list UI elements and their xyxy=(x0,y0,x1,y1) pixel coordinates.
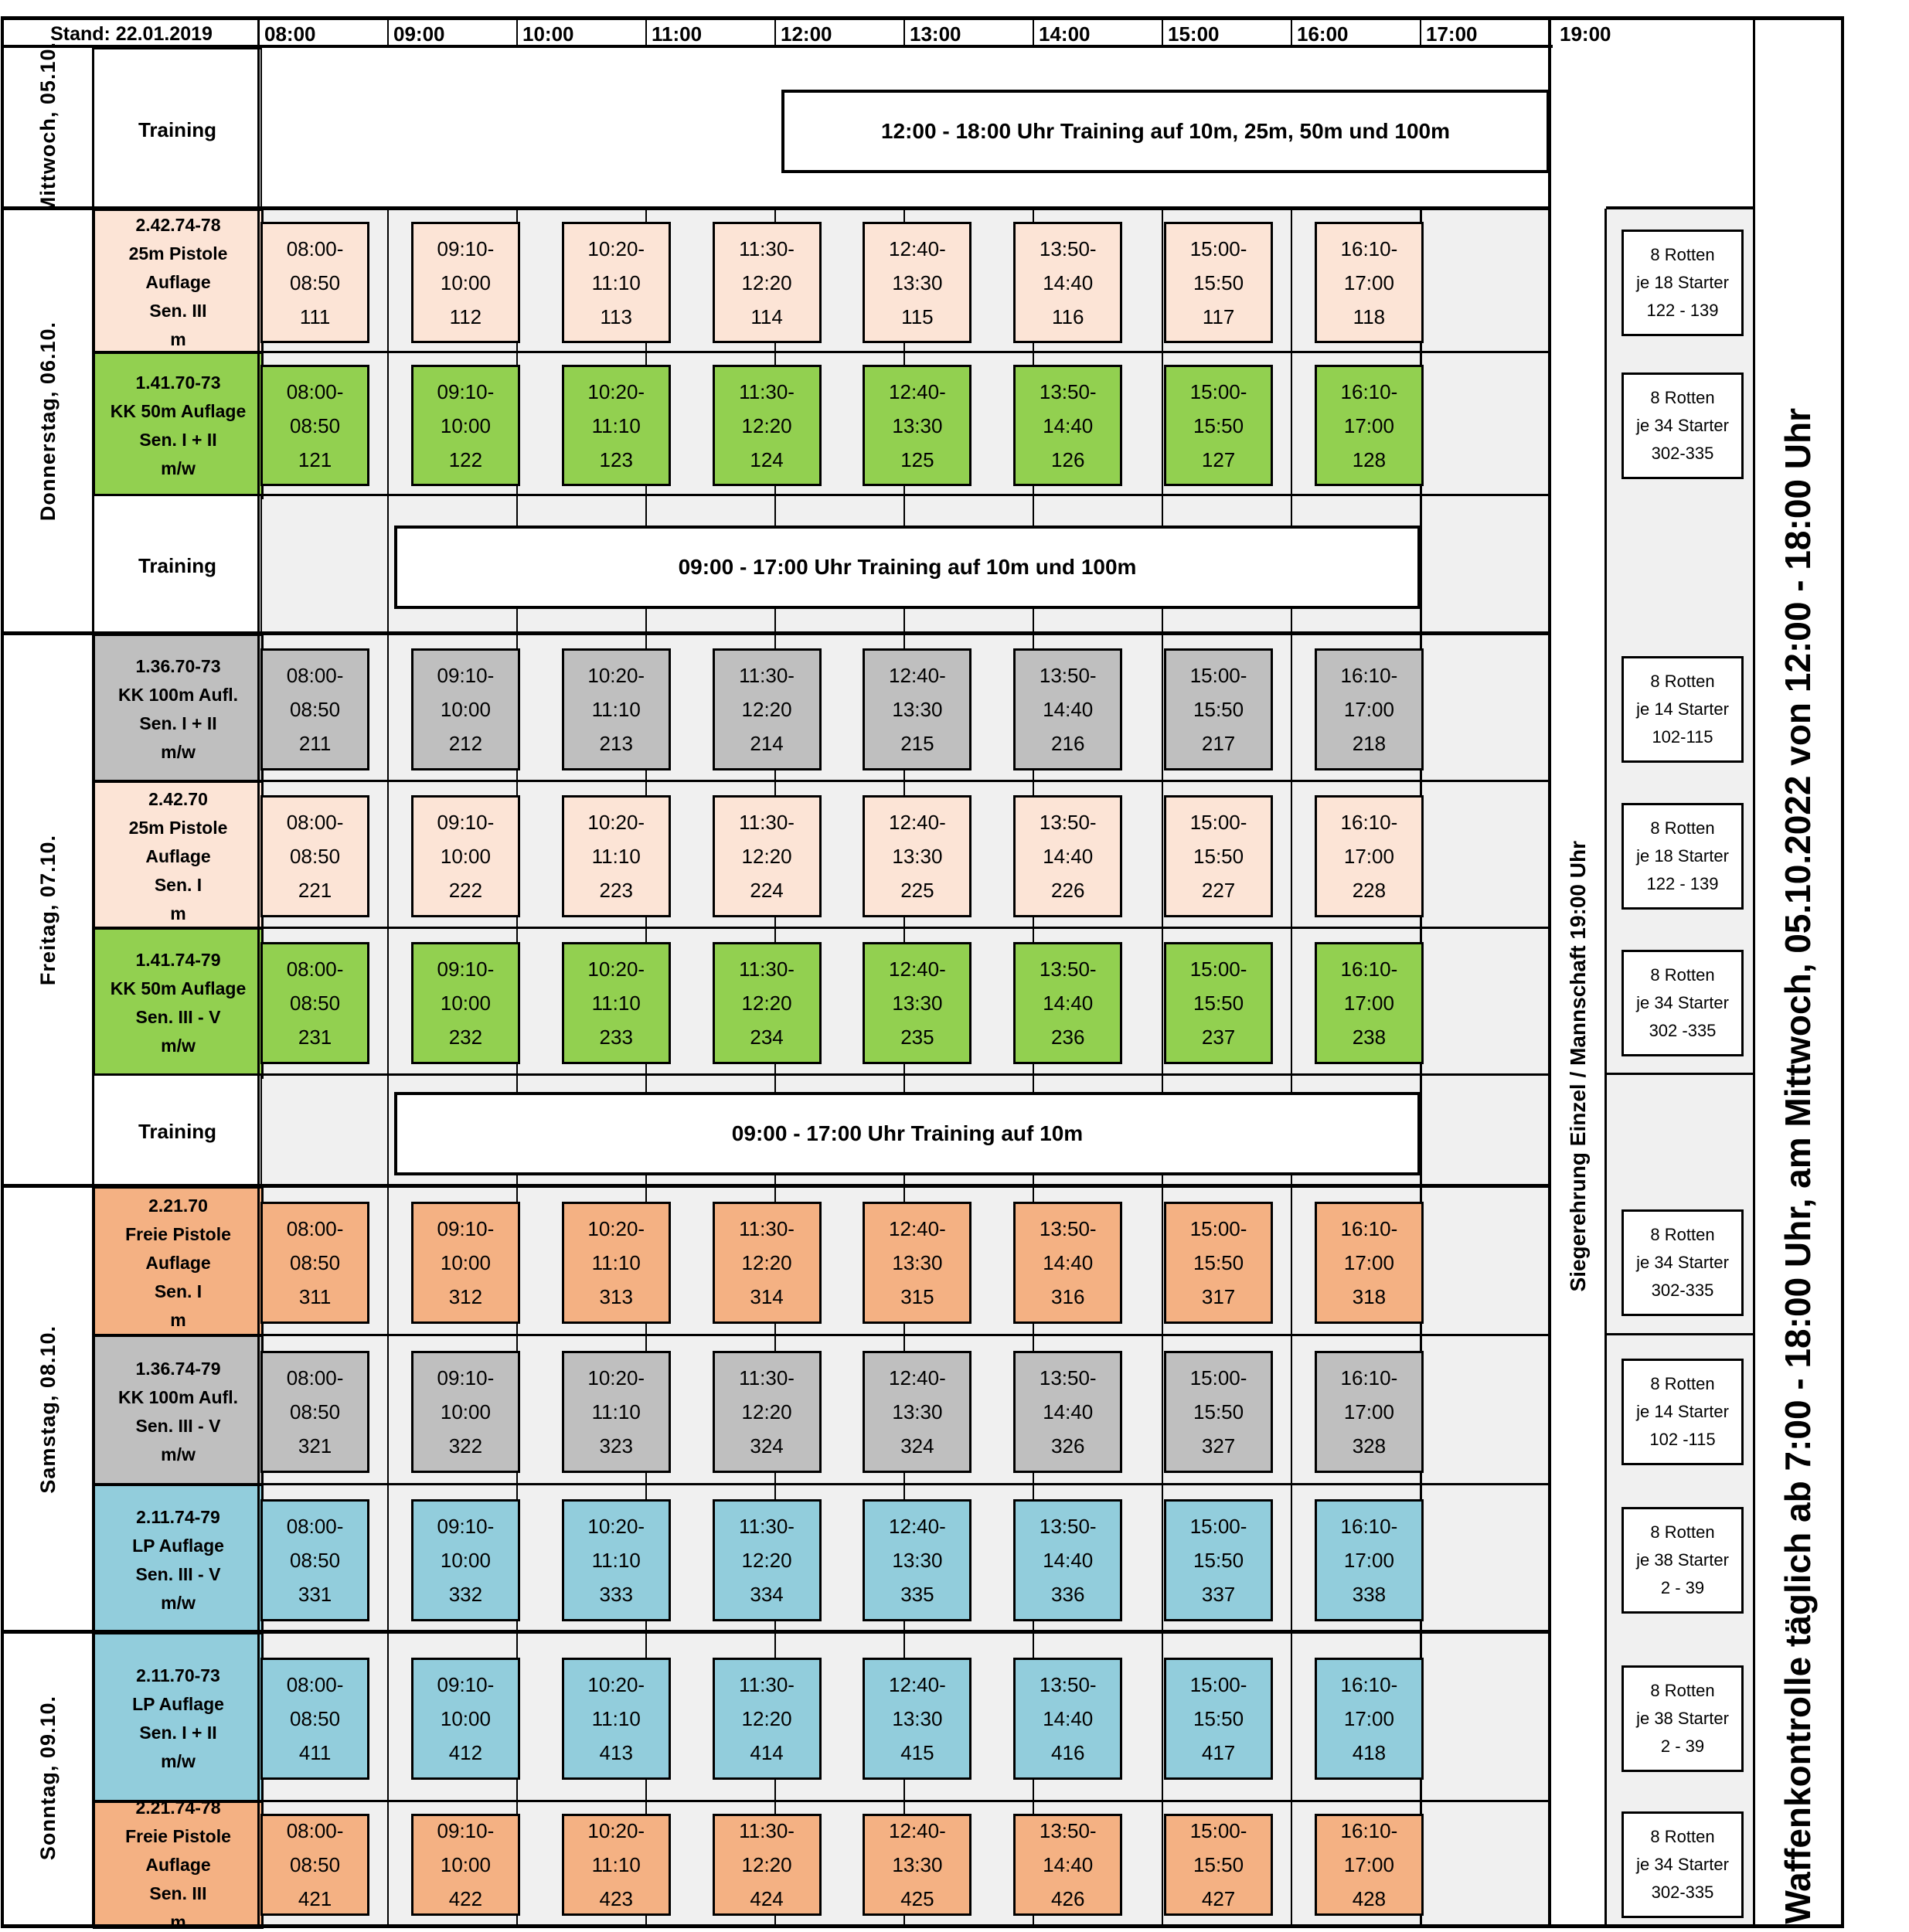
slot-time: 15:00-15:50 xyxy=(1166,375,1271,443)
category-line: m xyxy=(170,325,185,354)
slot-number: 311 xyxy=(299,1280,331,1314)
slot-time: 12:40-13:30 xyxy=(865,1212,969,1280)
time-slot-cell: 13:50-14:40316 xyxy=(1013,1202,1122,1324)
category-cell: 1.41.70-73KK 50m AuflageSen. I + IIm/w xyxy=(93,352,264,499)
rotten-top-border xyxy=(1606,206,1754,209)
slot-number: 236 xyxy=(1051,1020,1084,1054)
training-label: Training xyxy=(138,116,216,145)
category-cell: 1.41.74-79KK 50m AuflageSen. III - Vm/w xyxy=(93,927,264,1079)
header-bottom-border xyxy=(4,45,1553,48)
slot-number: 326 xyxy=(1051,1429,1084,1463)
time-slot-cell: 09:10-10:00332 xyxy=(411,1499,520,1621)
slot-number: 228 xyxy=(1353,873,1386,907)
category-line: Sen. III xyxy=(149,297,206,325)
time-slot-cell: 08:00-08:50121 xyxy=(260,365,369,486)
slot-time: 08:00-08:50 xyxy=(263,1814,367,1882)
category-line: 1.36.74-79 xyxy=(136,1355,221,1383)
time-slot-cell: 09:10-10:00122 xyxy=(411,365,520,486)
training-label: Training xyxy=(138,552,216,580)
time-slot-cell: 11:30-12:20214 xyxy=(713,648,822,770)
slot-number: 218 xyxy=(1353,726,1386,760)
rotten-line: je 38 Starter xyxy=(1636,1705,1729,1733)
slot-number: 321 xyxy=(298,1429,332,1463)
header-grid-line xyxy=(1162,20,1163,48)
category-line: KK 100m Aufl. xyxy=(118,681,238,709)
grid-right-border xyxy=(1548,20,1551,1924)
slot-time: 10:20-11:10 xyxy=(564,1212,669,1280)
slot-number: 421 xyxy=(298,1882,332,1916)
slot-number: 425 xyxy=(900,1882,934,1916)
rotten-line: 8 Rotten xyxy=(1650,815,1714,842)
category-line: Freie Pistole Auflage xyxy=(95,1822,261,1879)
slot-time: 10:20-11:10 xyxy=(564,375,669,443)
slot-time: 09:10-10:00 xyxy=(413,375,518,443)
time-slot-cell: 13:50-14:40336 xyxy=(1013,1499,1122,1621)
header-time-cell: 11:00 xyxy=(646,20,781,48)
time-slot-cell: 11:30-12:20114 xyxy=(713,222,822,343)
slot-time: 09:10-10:00 xyxy=(413,1361,518,1429)
slot-time: 16:10-17:00 xyxy=(1317,375,1421,443)
slot-time: 16:10-17:00 xyxy=(1317,1814,1421,1882)
slot-time: 08:00-08:50 xyxy=(263,1668,367,1736)
time-slot-cell: 12:40-13:30115 xyxy=(863,222,972,343)
slot-number: 316 xyxy=(1051,1280,1084,1314)
time-slot-cell: 13:50-14:40416 xyxy=(1013,1658,1122,1780)
rotten-line: 302-335 xyxy=(1652,440,1714,468)
rotten-line: 8 Rotten xyxy=(1650,384,1714,412)
time-slot-cell: 15:00-15:50327 xyxy=(1164,1351,1273,1473)
time-slot-cell: 11:30-12:20314 xyxy=(713,1202,822,1324)
time-slot-cell: 10:20-11:10223 xyxy=(562,795,671,917)
slot-number: 424 xyxy=(750,1882,783,1916)
rotten-left-border xyxy=(1604,209,1607,1924)
slot-time: 09:10-10:00 xyxy=(413,1509,518,1577)
slot-number: 127 xyxy=(1202,443,1235,477)
slot-time: 16:10-17:00 xyxy=(1317,1509,1421,1577)
category-line: Sen. III xyxy=(149,1879,206,1908)
header-stand-cell: Stand: 22.01.2019 xyxy=(4,20,259,48)
slot-number: 427 xyxy=(1202,1882,1235,1916)
day-cell: Donnerstag, 06.10. xyxy=(4,209,93,634)
day-cell: Mittwoch, 05.10. xyxy=(4,48,93,209)
slot-time: 11:30-12:20 xyxy=(715,1509,819,1577)
slot-number: 415 xyxy=(900,1736,934,1770)
siegerehrung-label: Siegerehrung Einzel / Mannschaft 19:00 U… xyxy=(1566,841,1591,1291)
slot-number: 221 xyxy=(298,873,332,907)
slot-time: 16:10-17:00 xyxy=(1317,658,1421,726)
slot-time: 15:00-15:50 xyxy=(1166,1668,1271,1736)
slot-time: 10:20-11:10 xyxy=(564,805,669,873)
slot-number: 315 xyxy=(900,1280,934,1314)
time-slot-cell: 12:40-13:30235 xyxy=(863,942,972,1064)
slot-number: 124 xyxy=(750,443,783,477)
slot-time: 09:10-10:00 xyxy=(413,952,518,1020)
slot-number: 337 xyxy=(1202,1577,1235,1611)
time-slot-cell: 08:00-08:50231 xyxy=(260,942,369,1064)
time-slot-cell: 11:30-12:20334 xyxy=(713,1499,822,1621)
day-cell: Samstag, 08.10. xyxy=(4,1186,93,1632)
slot-number: 213 xyxy=(600,726,633,760)
day-label: Donnerstag, 06.10. xyxy=(36,321,60,521)
header-grid-line xyxy=(387,20,389,48)
category-cell: 2.11.74-79LP AuflageSen. III - Vm/w xyxy=(93,1484,264,1637)
rotten-line: je 14 Starter xyxy=(1636,1398,1729,1426)
header-grid-line xyxy=(903,20,905,48)
category-line: KK 100m Aufl. xyxy=(118,1383,238,1412)
slot-time: 10:20-11:10 xyxy=(564,658,669,726)
slot-time: 16:10-17:00 xyxy=(1317,1212,1421,1280)
header-grid-line xyxy=(1420,20,1421,48)
rotten-line: je 34 Starter xyxy=(1636,412,1729,440)
slot-time: 13:50-14:40 xyxy=(1016,1361,1120,1429)
slot-number: 336 xyxy=(1051,1577,1084,1611)
category-line: Freie Pistole Auflage xyxy=(95,1220,261,1277)
slot-number: 237 xyxy=(1202,1020,1235,1054)
time-slot-cell: 09:10-10:00212 xyxy=(411,648,520,770)
category-line: KK 50m Auflage xyxy=(111,975,247,1003)
header-time-cell: 19:00 xyxy=(1554,20,1652,48)
slot-number: 223 xyxy=(600,873,633,907)
category-line: Sen. III - V xyxy=(136,1412,221,1440)
time-slot-cell: 16:10-17:00328 xyxy=(1315,1351,1424,1473)
header-grid-line xyxy=(774,20,776,48)
slot-number: 317 xyxy=(1202,1280,1235,1314)
rotten-line: 302 -335 xyxy=(1649,1017,1717,1045)
category-line: 1.36.70-73 xyxy=(136,652,221,681)
slot-time: 13:50-14:40 xyxy=(1016,952,1120,1020)
slot-number: 121 xyxy=(298,443,332,477)
slot-time: 12:40-13:30 xyxy=(865,1509,969,1577)
category-line: m/w xyxy=(161,738,196,767)
waffenkontrolle-column: Waffenkontrolle täglich ab 7:00 - 18:00 … xyxy=(1754,20,1841,1930)
slot-number: 413 xyxy=(600,1736,633,1770)
slot-time: 11:30-12:20 xyxy=(715,232,819,300)
rotten-line: 8 Rotten xyxy=(1650,1370,1714,1398)
time-slot-cell: 11:30-12:20414 xyxy=(713,1658,822,1780)
rotten-line: 8 Rotten xyxy=(1650,1677,1714,1705)
slot-time: 09:10-10:00 xyxy=(413,805,518,873)
time-slot-cell: 15:00-15:50317 xyxy=(1164,1202,1273,1324)
rotten-line: 2 - 39 xyxy=(1661,1574,1704,1602)
slot-number: 322 xyxy=(449,1429,482,1463)
rotten-info-box: 8 Rottenje 18 Starter122 - 139 xyxy=(1621,230,1744,336)
rotten-line: 8 Rotten xyxy=(1650,1221,1714,1249)
slot-number: 333 xyxy=(600,1577,633,1611)
slot-time: 08:00-08:50 xyxy=(263,375,367,443)
rotten-line: 8 Rotten xyxy=(1650,1519,1714,1546)
slot-time: 11:30-12:20 xyxy=(715,1668,819,1736)
time-slot-cell: 16:10-17:00318 xyxy=(1315,1202,1424,1324)
time-slot-cell: 16:10-17:00128 xyxy=(1315,365,1424,486)
rotten-line: je 38 Starter xyxy=(1636,1546,1729,1574)
time-slot-cell: 12:40-13:30324 xyxy=(863,1351,972,1473)
slot-number: 111 xyxy=(300,300,331,334)
slot-number: 324 xyxy=(900,1429,934,1463)
hour-grid-line xyxy=(1291,209,1292,1924)
time-slot-cell: 15:00-15:50427 xyxy=(1164,1814,1273,1916)
row-separator-line xyxy=(93,1483,1550,1485)
slot-number: 122 xyxy=(449,443,482,477)
slot-number: 214 xyxy=(750,726,783,760)
slot-time: 08:00-08:50 xyxy=(263,658,367,726)
day-cell: Sonntag, 09.10. xyxy=(4,1632,93,1924)
header-time-cell: 14:00 xyxy=(1033,20,1168,48)
header-time-cell: 08:00 xyxy=(259,20,393,48)
slot-number: 112 xyxy=(450,300,482,334)
slot-time: 08:00-08:50 xyxy=(263,1509,367,1577)
day-boundary-line xyxy=(4,1184,1550,1188)
slot-number: 414 xyxy=(750,1736,783,1770)
slot-time: 13:50-14:40 xyxy=(1016,1509,1120,1577)
category-line: m/w xyxy=(161,1032,196,1060)
slot-time: 15:00-15:50 xyxy=(1166,1361,1271,1429)
time-slot-cell: 11:30-12:20324 xyxy=(713,1351,822,1473)
time-slot-cell: 10:20-11:10313 xyxy=(562,1202,671,1324)
rotten-info-box: 8 Rottenje 34 Starter302-335 xyxy=(1621,1811,1744,1918)
time-slot-cell: 10:20-11:10213 xyxy=(562,648,671,770)
header-time-cell: 17:00 xyxy=(1421,20,1555,48)
time-slot-cell: 11:30-12:20124 xyxy=(713,365,822,486)
rotten-line: 122 - 139 xyxy=(1647,297,1719,325)
slot-number: 417 xyxy=(1202,1736,1235,1770)
slot-number: 224 xyxy=(750,873,783,907)
slot-time: 16:10-17:00 xyxy=(1317,1361,1421,1429)
slot-time: 12:40-13:30 xyxy=(865,952,969,1020)
time-slot-cell: 13:50-14:40426 xyxy=(1013,1814,1122,1916)
hour-grid-line xyxy=(1162,209,1163,1924)
training-category-cell: Training xyxy=(93,495,262,637)
time-slot-cell: 09:10-10:00222 xyxy=(411,795,520,917)
slot-time: 16:10-17:00 xyxy=(1317,952,1421,1020)
slot-time: 10:20-11:10 xyxy=(564,232,669,300)
slot-time: 13:50-14:40 xyxy=(1016,232,1120,300)
row-separator-line xyxy=(93,1334,1550,1336)
slot-number: 211 xyxy=(299,726,331,760)
category-cell: 2.21.74-78Freie Pistole AuflageSen. IIIm xyxy=(93,1801,264,1929)
slot-time: 08:00-08:50 xyxy=(263,952,367,1020)
row-separator-line xyxy=(93,1073,1550,1076)
time-slot-cell: 10:20-11:10423 xyxy=(562,1814,671,1916)
outer-right-border xyxy=(1841,16,1844,1928)
training-category-cell: Training xyxy=(93,1074,262,1189)
row-separator-line xyxy=(93,351,1550,353)
category-grid-divider xyxy=(257,20,260,1924)
slot-time: 08:00-08:50 xyxy=(263,805,367,873)
slot-number: 225 xyxy=(900,873,934,907)
time-slot-cell: 08:00-08:50321 xyxy=(260,1351,369,1473)
category-line: KK 50m Auflage xyxy=(111,397,247,426)
slot-time: 09:10-10:00 xyxy=(413,1814,518,1882)
time-slot-cell: 12:40-13:30225 xyxy=(863,795,972,917)
slot-number: 114 xyxy=(750,300,782,334)
waffenkontrolle-label: Waffenkontrolle täglich ab 7:00 - 18:00 … xyxy=(1777,408,1819,1924)
time-slot-cell: 15:00-15:50217 xyxy=(1164,648,1273,770)
slot-time: 15:00-15:50 xyxy=(1166,1509,1271,1577)
hour-grid-line xyxy=(387,209,389,1924)
slot-time: 16:10-17:00 xyxy=(1317,232,1421,300)
slot-time: 09:10-10:00 xyxy=(413,658,518,726)
slot-time: 12:40-13:30 xyxy=(865,805,969,873)
time-slot-cell: 09:10-10:00422 xyxy=(411,1814,520,1916)
category-cell: 2.42.7025m Pistole AuflageSen. Im xyxy=(93,781,264,932)
header-grid-line xyxy=(645,20,647,48)
training-banner: 09:00 - 17:00 Uhr Training auf 10m xyxy=(394,1092,1421,1175)
category-line: Sen. III - V xyxy=(136,1560,221,1589)
time-slot-cell: 13:50-14:40226 xyxy=(1013,795,1122,917)
slot-time: 11:30-12:20 xyxy=(715,375,819,443)
day-label: Samstag, 08.10. xyxy=(36,1325,60,1494)
slot-time: 15:00-15:50 xyxy=(1166,658,1271,726)
slot-time: 11:30-12:20 xyxy=(715,805,819,873)
time-slot-cell: 12:40-13:30125 xyxy=(863,365,972,486)
time-slot-cell: 13:50-14:40216 xyxy=(1013,648,1122,770)
slot-time: 09:10-10:00 xyxy=(413,1212,518,1280)
slot-time: 16:10-17:00 xyxy=(1317,805,1421,873)
slot-time: 15:00-15:50 xyxy=(1166,1212,1271,1280)
category-line: 25m Pistole Auflage xyxy=(95,240,261,297)
slot-time: 15:00-15:50 xyxy=(1166,1814,1271,1882)
time-slot-cell: 08:00-08:50411 xyxy=(260,1658,369,1780)
rotten-info-box: 8 Rottenje 34 Starter302-335 xyxy=(1621,1209,1744,1316)
rotten-line: 8 Rotten xyxy=(1650,1823,1714,1851)
day-label: Sonntag, 09.10. xyxy=(36,1696,60,1860)
row-separator-line xyxy=(93,494,1550,496)
slot-time: 11:30-12:20 xyxy=(715,952,819,1020)
category-line: Sen. I + II xyxy=(139,709,216,738)
rotten-line: je 18 Starter xyxy=(1636,269,1729,297)
slot-number: 234 xyxy=(750,1020,783,1054)
rotten-info-box: 8 Rottenje 34 Starter302-335 xyxy=(1621,372,1744,479)
category-line: LP Auflage xyxy=(132,1690,224,1719)
time-slot-cell: 08:00-08:50221 xyxy=(260,795,369,917)
header-time-cell: 16:00 xyxy=(1291,20,1426,48)
rotten-line: 302-335 xyxy=(1652,1277,1714,1304)
slot-number: 126 xyxy=(1051,443,1084,477)
slot-number: 411 xyxy=(299,1736,331,1770)
time-slot-cell: 08:00-08:50331 xyxy=(260,1499,369,1621)
slot-number: 232 xyxy=(449,1020,482,1054)
slot-number: 328 xyxy=(1353,1429,1386,1463)
category-line: Sen. I + II xyxy=(139,426,216,454)
category-cell: 1.36.70-73KK 100m Aufl.Sen. I + IIm/w xyxy=(93,634,264,785)
time-slot-cell: 08:00-08:50211 xyxy=(260,648,369,770)
slot-number: 313 xyxy=(600,1280,633,1314)
rotten-section-divider xyxy=(1606,1333,1754,1335)
category-line: Sen. III - V xyxy=(136,1003,221,1032)
rotten-info-box: 8 Rottenje 34 Starter302 -335 xyxy=(1621,950,1744,1056)
header-grid-line xyxy=(1291,20,1292,48)
day-boundary-line xyxy=(4,631,1550,635)
time-slot-cell: 10:20-11:10413 xyxy=(562,1658,671,1780)
siegerehrung-column: Siegerehrung Einzel / Mannschaft 19:00 U… xyxy=(1550,209,1606,1924)
time-slot-cell: 09:10-10:00232 xyxy=(411,942,520,1064)
slot-number: 233 xyxy=(600,1020,633,1054)
time-slot-cell: 10:20-11:10113 xyxy=(562,222,671,343)
slot-number: 117 xyxy=(1203,300,1234,334)
slot-number: 338 xyxy=(1353,1577,1386,1611)
category-line: 1.41.70-73 xyxy=(136,369,221,397)
outer-left-border xyxy=(1,16,4,1928)
rotten-line: 8 Rotten xyxy=(1650,241,1714,269)
slot-time: 11:30-12:20 xyxy=(715,1212,819,1280)
slot-time: 10:20-11:10 xyxy=(564,1668,669,1736)
slot-time: 15:00-15:50 xyxy=(1166,232,1271,300)
rotten-line: 102-115 xyxy=(1652,723,1713,751)
time-slot-cell: 16:10-17:00118 xyxy=(1315,222,1424,343)
rotten-line: 2 - 39 xyxy=(1661,1733,1704,1760)
slot-number: 426 xyxy=(1051,1882,1084,1916)
slot-time: 13:50-14:40 xyxy=(1016,1668,1120,1736)
slot-number: 222 xyxy=(449,873,482,907)
slot-time: 12:40-13:30 xyxy=(865,1668,969,1736)
rotten-line: je 14 Starter xyxy=(1636,696,1729,723)
slot-number: 118 xyxy=(1353,300,1385,334)
rotten-line: 8 Rotten xyxy=(1650,961,1714,989)
rotten-section-divider xyxy=(1606,1073,1754,1075)
category-line: m/w xyxy=(161,1747,196,1776)
outer-top-border xyxy=(4,16,1841,20)
slot-number: 323 xyxy=(600,1429,633,1463)
slot-number: 115 xyxy=(901,300,933,334)
time-slot-cell: 10:20-11:10233 xyxy=(562,942,671,1064)
time-slot-cell: 16:10-17:00428 xyxy=(1315,1814,1424,1916)
category-line: Sen. I xyxy=(155,1277,202,1306)
rotten-info-box: 8 Rottenje 18 Starter122 - 139 xyxy=(1621,803,1744,910)
time-slot-cell: 08:00-08:50111 xyxy=(260,222,369,343)
category-line: 1.41.74-79 xyxy=(136,946,221,975)
category-cell: 2.42.74-7825m Pistole AuflageSen. IIIm xyxy=(93,209,264,356)
day-boundary-line xyxy=(4,1630,1550,1634)
time-slot-cell: 10:20-11:10323 xyxy=(562,1351,671,1473)
time-slot-cell: 09:10-10:00112 xyxy=(411,222,520,343)
training-label: Training xyxy=(138,1117,216,1146)
slot-number: 235 xyxy=(900,1020,934,1054)
slot-time: 16:10-17:00 xyxy=(1317,1668,1421,1736)
slot-number: 428 xyxy=(1353,1882,1386,1916)
slot-number: 334 xyxy=(750,1577,783,1611)
slot-number: 226 xyxy=(1051,873,1084,907)
time-slot-cell: 15:00-15:50417 xyxy=(1164,1658,1273,1780)
rotten-line: je 34 Starter xyxy=(1636,1249,1729,1277)
time-slot-cell: 16:10-17:00228 xyxy=(1315,795,1424,917)
time-slot-cell: 09:10-10:00312 xyxy=(411,1202,520,1324)
slot-time: 13:50-14:40 xyxy=(1016,658,1120,726)
slot-number: 113 xyxy=(601,300,632,334)
day-cell: Freitag, 07.10. xyxy=(4,634,93,1186)
header-time-cell: 10:00 xyxy=(517,20,652,48)
slot-time: 10:20-11:10 xyxy=(564,1361,669,1429)
time-slot-cell: 15:00-15:50227 xyxy=(1164,795,1273,917)
time-slot-cell: 16:10-17:00418 xyxy=(1315,1658,1424,1780)
schedule-sheet: Stand: 22.01.201908:0009:0010:0011:0012:… xyxy=(0,0,1909,1932)
category-line: 2.42.70 xyxy=(148,785,208,814)
slot-number: 227 xyxy=(1202,873,1235,907)
slot-number: 314 xyxy=(750,1280,783,1314)
time-slot-cell: 16:10-17:00338 xyxy=(1315,1499,1424,1621)
category-line: m/w xyxy=(161,454,196,483)
slot-number: 238 xyxy=(1353,1020,1386,1054)
time-slot-cell: 12:40-13:30415 xyxy=(863,1658,972,1780)
slot-time: 15:00-15:50 xyxy=(1166,952,1271,1020)
slot-number: 318 xyxy=(1353,1280,1386,1314)
slot-time: 11:30-12:20 xyxy=(715,658,819,726)
time-slot-cell: 11:30-12:20224 xyxy=(713,795,822,917)
slot-number: 327 xyxy=(1202,1429,1235,1463)
slot-number: 332 xyxy=(449,1577,482,1611)
slot-time: 11:30-12:20 xyxy=(715,1814,819,1882)
time-slot-cell: 15:00-15:50117 xyxy=(1164,222,1273,343)
slot-time: 12:40-13:30 xyxy=(865,232,969,300)
